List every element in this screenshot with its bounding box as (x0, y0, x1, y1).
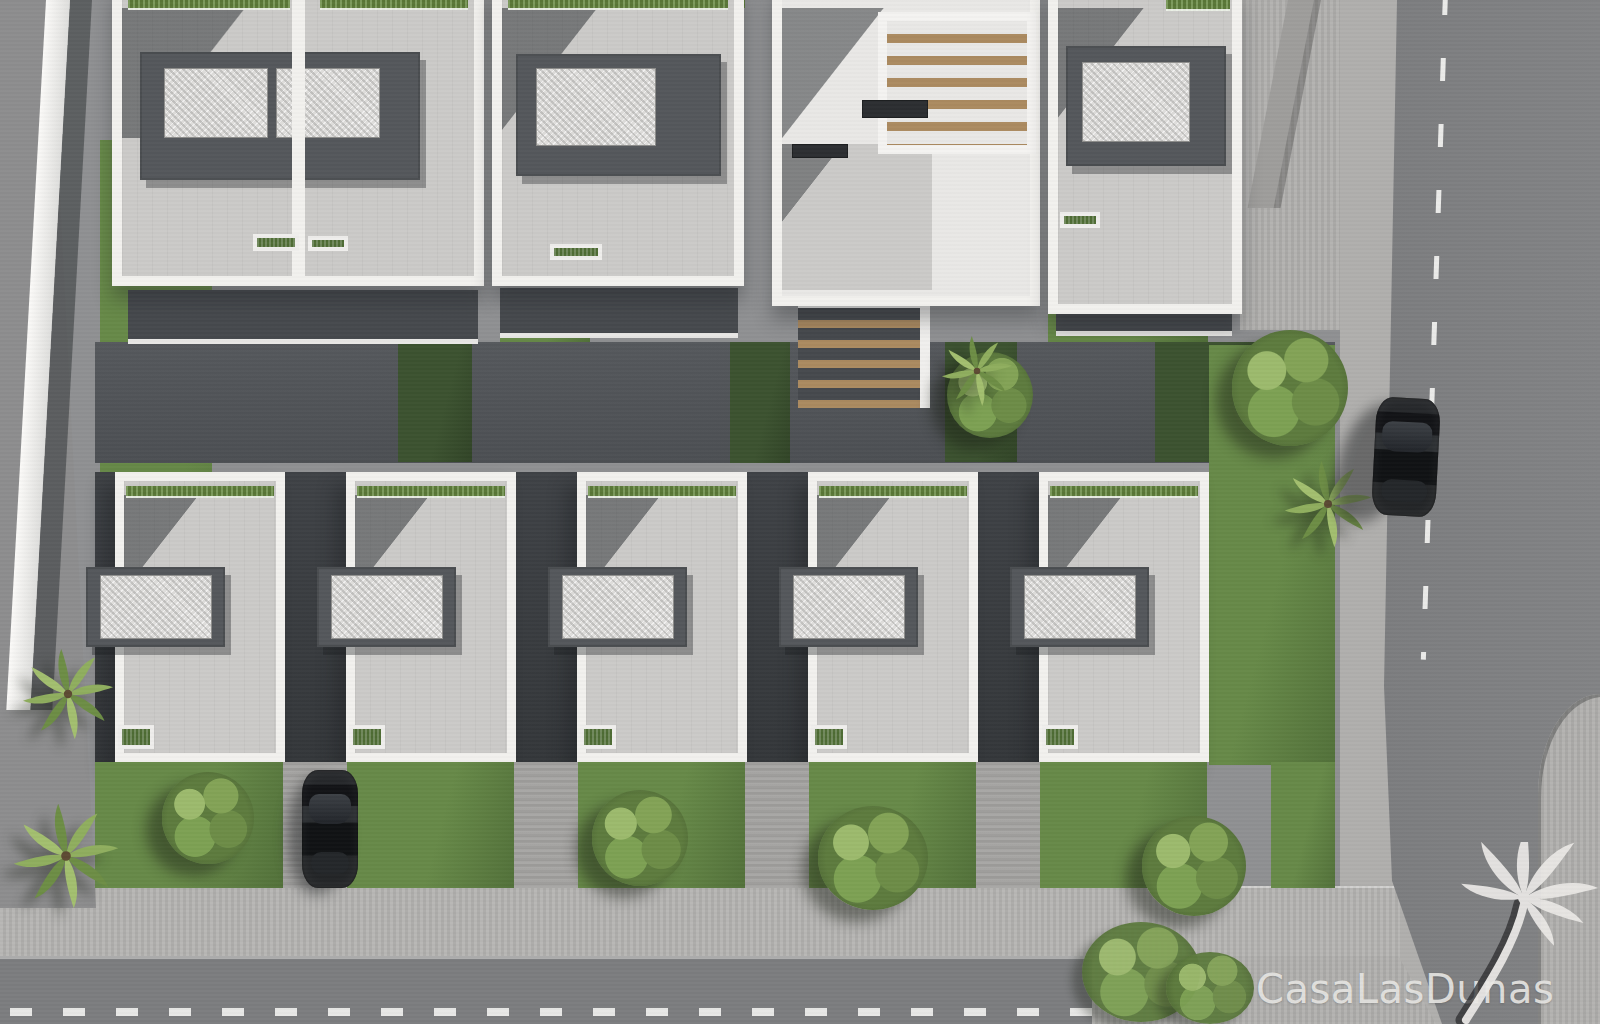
house-upper-4 (1048, 0, 1242, 314)
bush-cluster (1166, 952, 1254, 1024)
roof-hedge (320, 0, 468, 10)
house-lower-4 (808, 472, 978, 762)
car-parked-driveway (302, 770, 358, 888)
planter (349, 725, 385, 749)
roof-hedge (357, 486, 505, 498)
gravel-roof (100, 575, 212, 639)
roof-terrace (782, 144, 932, 290)
roof-hedge (1166, 0, 1230, 11)
planter (811, 725, 847, 749)
gravel-roof (331, 575, 443, 639)
planter (1060, 212, 1100, 228)
gravel-roof (164, 68, 268, 138)
palm-tree-icon (1424, 842, 1600, 1024)
house-upper-2 (492, 0, 744, 286)
rear-roof (128, 290, 478, 344)
roof-hedge (508, 0, 728, 10)
roof-hedge (126, 486, 274, 498)
solar-panel (862, 100, 928, 118)
front-lawn (347, 762, 514, 888)
wood-pergola-deck (798, 302, 930, 408)
roof-volume (779, 567, 918, 647)
palm-tree (938, 332, 1016, 410)
courtyard-lane (95, 342, 1335, 463)
palm-tree (8, 798, 124, 914)
gravel-roof (562, 575, 674, 639)
house-upper-1 (112, 0, 484, 286)
house-upper-3-pergola (772, 0, 1040, 306)
roof-volume (317, 567, 456, 647)
house-lower-5 (1039, 472, 1209, 762)
roof-volume (1066, 46, 1226, 166)
planter (1042, 725, 1078, 749)
tree (162, 772, 254, 864)
gravel-roof (1082, 62, 1190, 142)
house-lower-3 (577, 472, 747, 762)
courtyard-lawn (398, 342, 472, 462)
gravel-roof (1024, 575, 1136, 639)
car-on-street (1371, 396, 1441, 517)
roof-hedge (1050, 486, 1198, 498)
gravel-roof (793, 575, 905, 639)
rear-roof (500, 288, 738, 338)
pergola-roof (878, 12, 1036, 154)
driveway (745, 762, 809, 888)
roof-volume (548, 567, 687, 647)
front-lawn (1271, 762, 1335, 888)
roof-volume (140, 52, 420, 180)
roof-volume (1010, 567, 1149, 647)
solar-panel (792, 144, 848, 158)
courtyard-lawn (730, 342, 790, 463)
street-bottom-centerline (10, 1008, 1096, 1016)
tree (818, 806, 928, 910)
roof-hedge (128, 0, 290, 10)
driveway (514, 762, 578, 888)
gravel-roof (536, 68, 656, 146)
house-lower-1 (115, 472, 285, 762)
planter (550, 244, 602, 260)
tree (592, 790, 688, 886)
house-lower-2 (346, 472, 516, 762)
aerial-render-scene: CasaLasDunas (0, 0, 1600, 1024)
planter (580, 725, 616, 749)
tree (1142, 816, 1246, 916)
roof-volume (516, 54, 721, 176)
roof-hedge (819, 486, 967, 498)
roof-hedge (588, 486, 736, 498)
driveway (976, 762, 1040, 888)
planter (118, 725, 154, 749)
tree (1232, 330, 1348, 446)
planter (308, 236, 348, 251)
planter (253, 234, 299, 251)
palm-tree (18, 644, 118, 744)
roof-volume (86, 567, 225, 647)
